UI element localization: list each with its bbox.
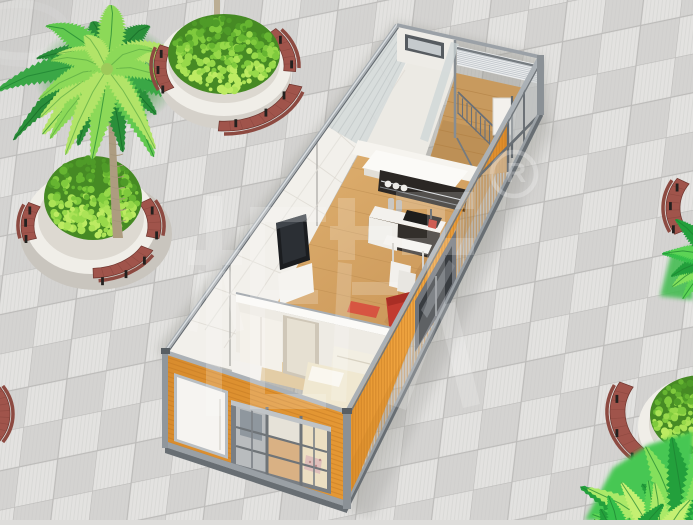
svg-text:R: R bbox=[506, 157, 526, 188]
